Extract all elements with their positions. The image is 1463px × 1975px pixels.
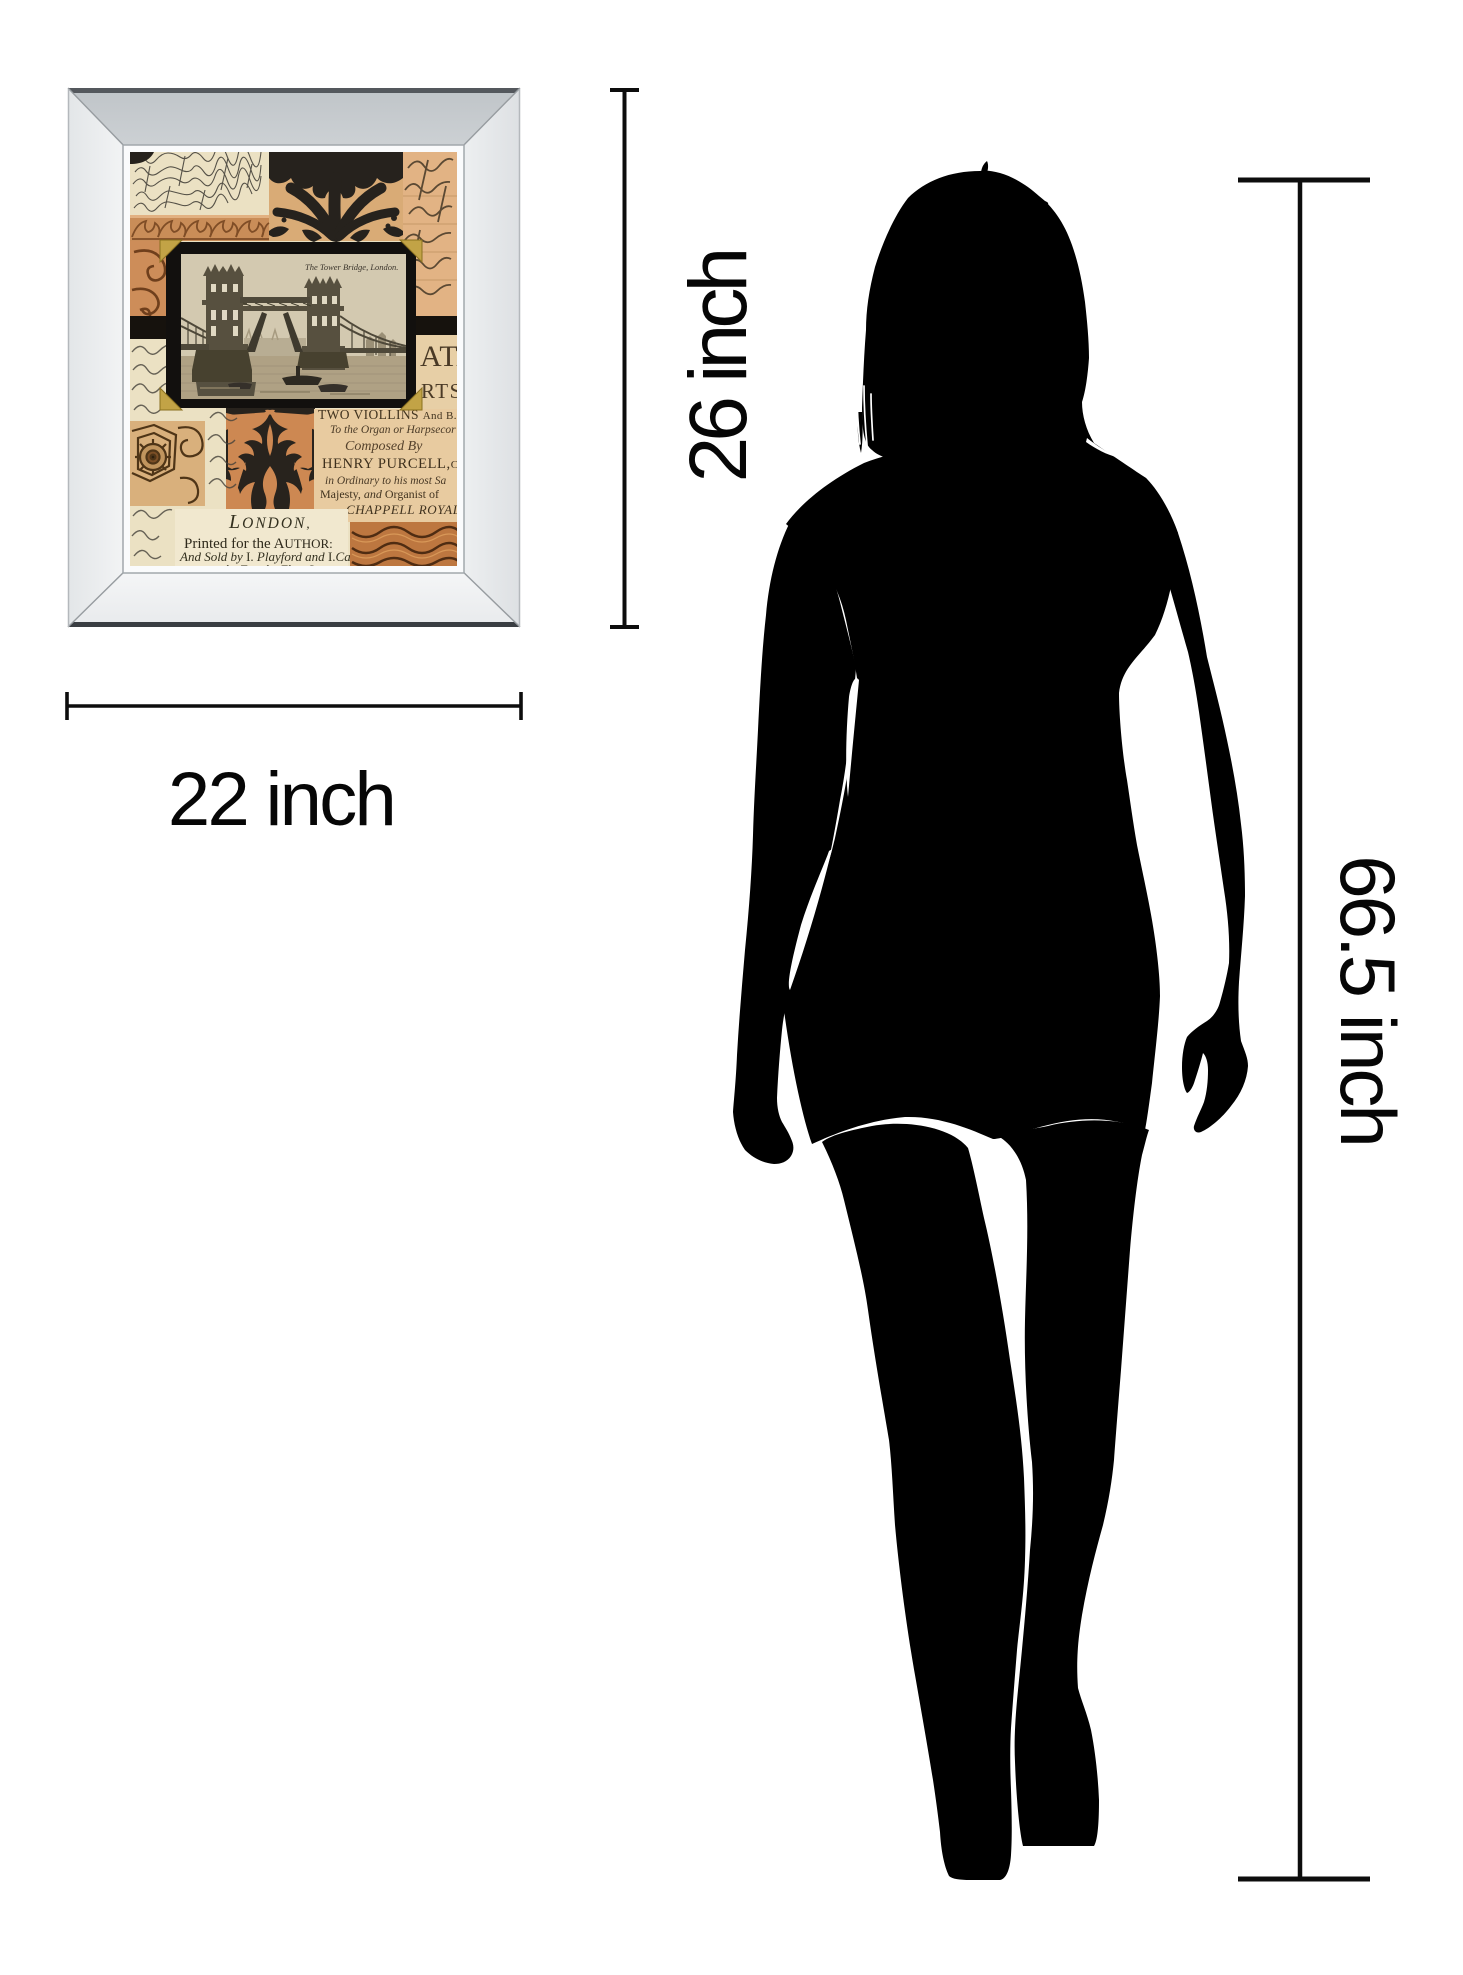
svg-text:Composed By: Composed By — [345, 439, 423, 454]
svg-text:Majesty, and Organist of: Majesty, and Organist of — [320, 487, 439, 501]
svg-text:66.5 inch: 66.5 inch — [1324, 855, 1412, 1145]
svg-text:CHAPPELL ROYALL: CHAPPELL ROYALL — [346, 502, 468, 517]
svg-text:TWO VIOLLINS And B.: TWO VIOLLINS And B. — [318, 407, 457, 422]
svg-text:To the Organ or Harpsecor: To the Organ or Harpsecor — [330, 424, 456, 436]
svg-text:LONDON,: LONDON, — [228, 511, 312, 533]
svg-text:26 inch: 26 inch — [673, 251, 764, 482]
svg-text:in Ordinary to his most Sa: in Ordinary to his most Sa — [325, 475, 447, 487]
svg-text:22 inch: 22 inch — [168, 757, 394, 842]
svg-text:HENRY PURCELL,C: HENRY PURCELL,C — [322, 456, 459, 472]
svg-text:RTS: RTS — [421, 379, 463, 403]
svg-text:The Tower Bridge, London.: The Tower Bridge, London. — [305, 262, 398, 272]
